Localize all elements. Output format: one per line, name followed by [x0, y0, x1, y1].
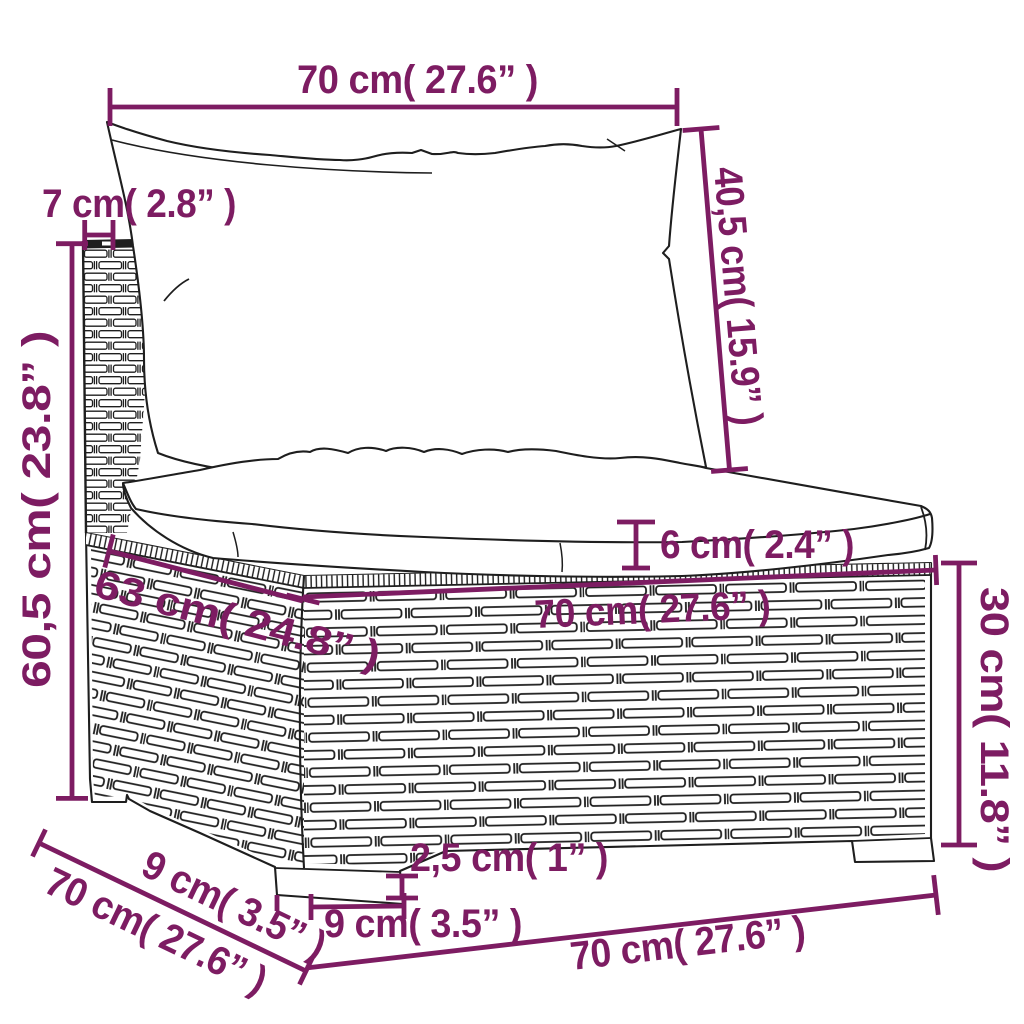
- svg-text:7 cm( 2.8” ): 7 cm( 2.8” ): [42, 182, 236, 226]
- svg-text:70 cm( 27.6” ): 70 cm( 27.6” ): [297, 58, 538, 102]
- svg-text:60,5 cm( 23.8” ): 60,5 cm( 23.8” ): [15, 331, 59, 688]
- svg-text:2,5 cm( 1” ): 2,5 cm( 1” ): [410, 836, 608, 880]
- svg-text:9 cm( 3.5” ): 9 cm( 3.5” ): [324, 902, 522, 946]
- svg-text:6 cm( 2.4” ): 6 cm( 2.4” ): [660, 523, 854, 567]
- svg-text:30 cm( 11.8” ): 30 cm( 11.8” ): [972, 587, 1016, 872]
